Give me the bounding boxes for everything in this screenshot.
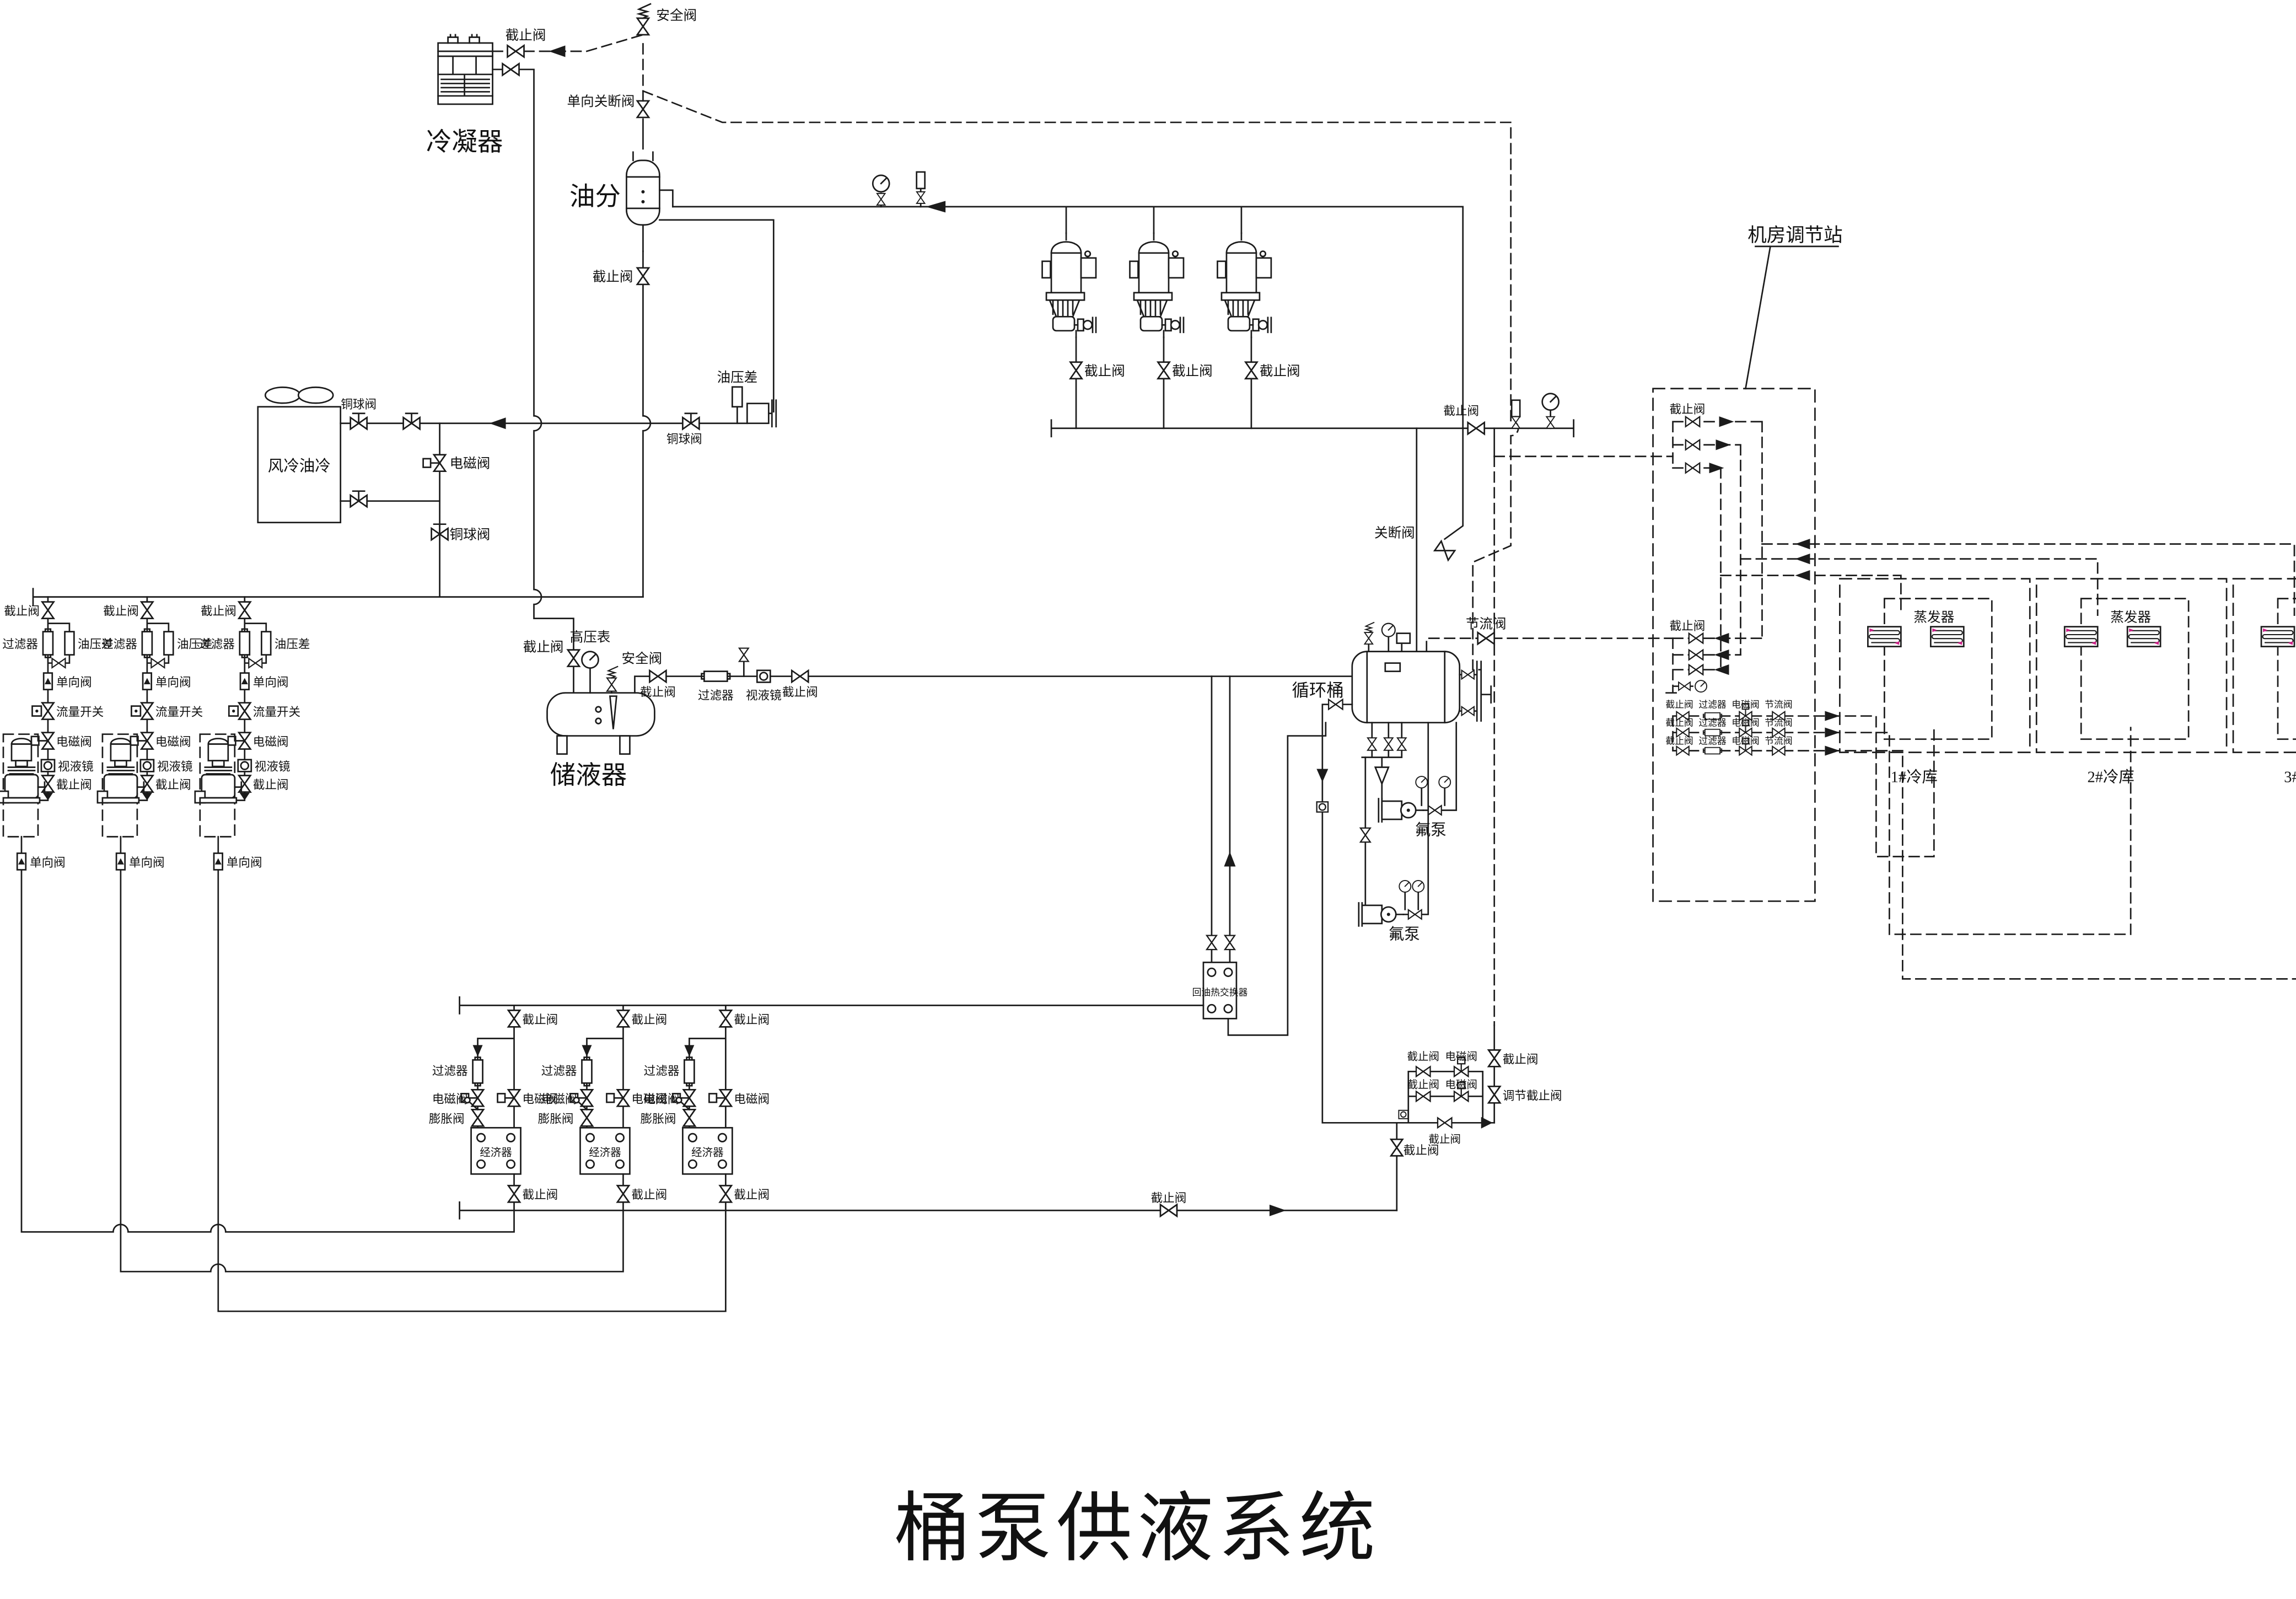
cold-room-boundary (2233, 579, 2296, 753)
flow-arrow-right (1481, 1117, 1493, 1129)
stop-valve-label: 截止阀 (1670, 620, 1706, 633)
check-valve-icon (116, 853, 125, 870)
copper-ball-valve-label: 铜球阀 (341, 398, 377, 411)
stop-valve-label: 截止阀 (201, 605, 236, 618)
piping-diagram-page: 冷凝器 截止阀 单向关断阀 安全阀 关断阀 油分 截止阀 (0, 0, 2296, 1599)
sight-glass-label: 视液镜 (157, 760, 193, 774)
evaporator-circuit-boundary (2278, 599, 2296, 739)
gauge-valve-icon (1546, 417, 1555, 428)
stop-valve-label: 截止阀 (1151, 1192, 1187, 1205)
cold-room-boundary (1840, 579, 2030, 753)
pump-gauge-icon (1412, 881, 1424, 892)
check-valve-icon (214, 853, 223, 870)
stop-valve-icon (508, 45, 524, 57)
stop-valve-icon (141, 602, 153, 619)
stop-valve-icon (1686, 463, 1700, 473)
station-boundary (1653, 389, 1815, 902)
gauge-icon (1695, 680, 1707, 692)
solenoid-valve-label: 电磁阀 (644, 1092, 680, 1106)
flow-switch-icon (229, 703, 250, 720)
stop-valve-label: 截止阀 (253, 779, 289, 792)
check-valve-label: 单向阀 (30, 856, 66, 869)
check-valve-label: 单向阀 (155, 676, 191, 689)
filter-label: 过滤器 (199, 638, 235, 651)
stop-valve-label: 截止阀 (1429, 1133, 1461, 1145)
diagram-title: 桶泵供液系统 (894, 1487, 1380, 1571)
flow-arrow-down (684, 1045, 694, 1056)
stop-valve-label: 截止阀 (1670, 403, 1706, 416)
solenoid-valve-label: 电磁阀 (432, 1092, 468, 1106)
high-pressure-gauge-icon (582, 652, 598, 668)
economizer-branch-2: 截止阀 过滤器 电磁阀 膨胀阀 电磁阀 经济器 截止阀 (538, 1005, 667, 1210)
stop-valve-icon (1408, 910, 1422, 919)
flow-switch-icon (32, 703, 53, 720)
cold-room-label: 2#冷库 (2087, 769, 2134, 786)
sight-glass-label: 视液镜 (255, 760, 291, 774)
high-pressure-gauge-label: 高压表 (570, 630, 611, 645)
pressure-gauge-icon (1382, 624, 1395, 637)
stop-valve-label: 截止阀 (1407, 1078, 1439, 1091)
solenoid-valve-icon (423, 455, 445, 471)
station-label: 机房调节站 (1747, 225, 1842, 246)
oil-separator-label: 油分 (569, 183, 621, 211)
evaporator-coil-icon (1868, 627, 1901, 647)
check-valve-label: 单向阀 (129, 856, 165, 869)
stop-valve-label: 截止阀 (640, 686, 676, 699)
one-way-shutoff-valve-icon (637, 101, 649, 117)
cold-room-label: 3#冷库 (2284, 769, 2296, 786)
diagram-canvas: 冷凝器 截止阀 单向关断阀 安全阀 关断阀 油分 截止阀 (0, 0, 2296, 1599)
screw-compressor-icon (1217, 233, 1271, 337)
check-valve-icon (44, 673, 52, 690)
solenoid-valve-label: 电磁阀 (1445, 1050, 1477, 1063)
stop-valve-label: 截止阀 (523, 640, 564, 655)
flow-switch-label: 流量开关 (253, 706, 300, 719)
solenoid-valve-label: 电磁阀 (1732, 736, 1759, 747)
stop-valve-label: 截止阀 (506, 28, 546, 43)
economizer-label: 经济器 (480, 1146, 512, 1158)
bypass-valve-icon (52, 658, 65, 668)
flow-switch-label: 流量开关 (155, 706, 203, 719)
stop-valve-label: 截止阀 (1084, 363, 1125, 379)
pump-gauge-icon (1416, 776, 1427, 788)
condenser-body (438, 43, 493, 104)
stop-valve-icon (1689, 650, 1703, 660)
stop-valve-icon (792, 670, 808, 682)
suction-header-group: 截止阀 截止阀 调节截止阀 (1051, 394, 1673, 1123)
stop-valve-icon (720, 1010, 732, 1027)
flow-arrow-down (473, 1045, 483, 1056)
oil-pressure-diff-device (65, 632, 74, 655)
stop-valve-label: 截止阀 (56, 779, 92, 792)
filter-label: 过滤器 (1698, 700, 1727, 710)
throttle-valve-label: 节流阀 (1765, 700, 1792, 710)
stop-valve-icon (1416, 1091, 1430, 1101)
filter-icon (702, 672, 730, 682)
stop-valve-label: 截止阀 (1665, 718, 1693, 728)
one-way-shutoff-label: 单向关断阀 (567, 94, 635, 109)
solenoid-valve-label: 电磁阀 (450, 456, 491, 471)
circulation-barrel-group: 循环桶 节流阀 (1292, 428, 1673, 1123)
stop-valve-label: 截止阀 (1407, 1050, 1439, 1063)
flow-arrow-right (1270, 1205, 1286, 1216)
bypass-valve-icon (151, 658, 164, 668)
stop-valve-icon (42, 602, 53, 619)
stop-valve-icon (1686, 417, 1700, 427)
filter-label: 过滤器 (541, 1064, 577, 1077)
cold-room-1: 蒸发器 1#冷库 (1840, 579, 2030, 786)
sensor-valve-icon (917, 192, 925, 203)
receiver-group: 储液器 截止阀 高压表 安全阀 (523, 630, 662, 790)
filter-label: 过滤器 (698, 689, 734, 702)
stop-valve-label: 截止阀 (631, 1013, 667, 1026)
circulation-barrel-label: 循环桶 (1292, 681, 1343, 700)
solenoid-valve-label: 电磁阀 (1732, 700, 1759, 710)
check-valve-label: 单向阀 (56, 676, 92, 689)
throttle-valve-label: 节流阀 (1765, 718, 1792, 728)
screw-compressor-icon (1130, 233, 1184, 337)
economizer-branch-3: 截止阀 过滤器 电磁阀 膨胀阀 电磁阀 经济器 截止阀 (641, 1005, 770, 1210)
sensor-valve-icon (1512, 417, 1520, 428)
level-valve-icon (1368, 738, 1376, 750)
oil-return-hx-label: 回油热交换器 (1192, 987, 1248, 997)
solenoid-valve-icon (498, 1090, 520, 1106)
solenoid-valve-icon (228, 733, 250, 749)
stop-valve-icon (1225, 936, 1235, 949)
stop-valve-icon (1488, 1050, 1500, 1066)
compressor-unit-1: 截止阀 (1042, 207, 1125, 428)
receiver-vessel (547, 693, 655, 736)
flow-arrow-left (490, 417, 506, 429)
solenoid-valve-label: 电磁阀 (734, 1092, 770, 1106)
flow-arrow-down (43, 793, 53, 800)
oil-pump-motor-icon (747, 400, 776, 427)
fan-icon (265, 387, 333, 403)
relief-valve-icon (1364, 623, 1374, 644)
flow-switch-label: 流量开关 (56, 706, 104, 719)
stop-valve-label: 截止阀 (1404, 1144, 1439, 1157)
solenoid-valve-label: 电磁阀 (155, 736, 191, 749)
stop-valve-label: 截止阀 (1443, 405, 1479, 418)
safety-valve-icon (637, 4, 650, 35)
filter-icon (684, 1058, 694, 1086)
level-valve-icon (1397, 738, 1406, 750)
fluorine-pump-label: 氟泵 (1389, 925, 1420, 943)
stop-valve-label: 截止阀 (523, 1013, 558, 1026)
stop-valve-icon (1461, 707, 1474, 716)
pressure-gauge-icon (1542, 394, 1559, 410)
stop-valve-label: 截止阀 (4, 605, 40, 618)
solenoid-valve-label: 电磁阀 (1445, 1078, 1477, 1091)
copper-ball-valve-icon (351, 491, 367, 507)
filter-label: 过滤器 (101, 638, 137, 651)
oil-cooler-label: 风冷油冷 (268, 458, 331, 475)
flow-switch-icon (131, 703, 153, 720)
economizer-branch-1: 截止阀 过滤器 电磁阀 膨胀阀 电磁阀 经济器 截止阀 (429, 1005, 558, 1210)
oil-header (33, 589, 643, 605)
condenser-label: 冷凝器 (426, 128, 503, 157)
stop-valve-icon (1438, 1118, 1451, 1128)
stop-valve-label: 截止阀 (631, 1188, 667, 1201)
solenoid-valve-icon (606, 1090, 628, 1106)
oil-pressure-diff-device (261, 632, 271, 655)
stop-valve-icon (508, 1010, 520, 1027)
sight-glass-icon (41, 760, 55, 772)
throttle-valve-icon (1478, 632, 1494, 644)
solenoid-valve-icon (31, 733, 53, 749)
stop-valve-icon (1160, 1205, 1177, 1216)
stop-valve-label: 截止阀 (103, 605, 139, 618)
safety-valve-icon (607, 667, 617, 691)
economizer-header: 截止阀 (460, 997, 1397, 1219)
safety-valve-label: 安全阀 (656, 8, 697, 23)
economizer-label: 经济器 (691, 1146, 723, 1158)
expansion-valve-label: 膨胀阀 (641, 1112, 676, 1125)
fluorine-pump-icon (1359, 903, 1404, 926)
bypass-valve-icon (249, 658, 262, 668)
stop-valve-label: 截止阀 (782, 686, 818, 699)
stop-valve-icon (1207, 936, 1217, 949)
stop-valve-icon (568, 650, 579, 667)
stop-valve-label: 截止阀 (1503, 1053, 1539, 1066)
solenoid-valve-label: 电磁阀 (1732, 718, 1759, 728)
oil-branch-2: 截止阀 过滤器 油压差 单向阀 流量开关 电磁阀 视液镜 截止阀 单向阀 (98, 597, 623, 1272)
discharge-header-group (673, 172, 1462, 539)
solenoid-valve-label: 电磁阀 (253, 736, 289, 749)
safety-valve-label: 安全阀 (621, 651, 662, 667)
regulating-stop-valve-label: 调节截止阀 (1503, 1089, 1562, 1102)
oil-pressure-diff-label: 油压差 (275, 638, 310, 651)
filter-icon (240, 629, 250, 658)
filter-label: 过滤器 (432, 1064, 468, 1077)
pump-gauge-icon (1439, 776, 1450, 788)
level-valve-icon (1384, 738, 1393, 750)
instrument-icon (1399, 1110, 1408, 1119)
check-valve-icon (17, 853, 26, 870)
oil-branch-1: 截止阀 过滤器 油压差 单向阀 流量开关 电磁阀 视液镜 截止阀 单向阀 (0, 597, 514, 1232)
filter-icon (473, 1058, 483, 1086)
evaporator-coil-icon (2127, 627, 2160, 647)
air-cooled-oil-cooler-group: 风冷油冷 铜球阀 铜球阀 电磁阀 铜球阀 油压差 (258, 370, 776, 597)
stop-valve-icon (1416, 1066, 1430, 1076)
sight-glass-icon (141, 760, 154, 772)
stop-valve-label: 截止阀 (1172, 363, 1213, 379)
filter-icon (43, 629, 53, 658)
sight-glass-icon (238, 760, 251, 772)
condenser-group: 冷凝器 截止阀 (426, 28, 643, 693)
check-valve-label: 单向阀 (253, 676, 289, 689)
screw-compressor-icon (1042, 233, 1096, 337)
stop-valve-icon (42, 776, 53, 792)
stop-valve-icon (720, 1185, 732, 1202)
flow-arrow-up (1224, 851, 1235, 866)
stop-valve-label: 截止阀 (1260, 363, 1300, 379)
solenoid-valve-label: 电磁阀 (541, 1092, 577, 1106)
stop-valve-icon (617, 1185, 629, 1202)
flow-arrow-down (582, 1045, 592, 1056)
copper-ball-valve-icon (682, 414, 699, 429)
filter-label: 过滤器 (1698, 718, 1727, 728)
stop-valve-icon (1686, 440, 1700, 450)
shutoff-valve-label: 关断阀 (1374, 525, 1415, 541)
flow-arrow-down (1316, 769, 1328, 782)
evaporator-label: 蒸发器 (1913, 610, 1954, 625)
stop-valve-icon (1689, 634, 1703, 643)
copper-ball-valve-label: 铜球阀 (450, 527, 491, 543)
cold-room-2: 蒸发器 2#冷库 (2036, 579, 2227, 786)
stop-valve-icon (1361, 828, 1370, 842)
stop-valve-icon (1689, 665, 1703, 675)
throttle-valve-label: 节流阀 (1765, 736, 1792, 747)
filter-label: 过滤器 (1698, 736, 1727, 747)
level-controller (1397, 634, 1410, 643)
copper-ball-valve-icon (351, 414, 367, 429)
bypass-group: 截止阀 截止阀 电磁阀 截止阀 电磁阀 截止阀 (1391, 1050, 1494, 1210)
stop-valve-label: 截止阀 (734, 1188, 770, 1201)
expansion-valve-label: 膨胀阀 (429, 1112, 465, 1125)
flow-arrow-down (240, 793, 250, 800)
economizer-label: 经济器 (589, 1146, 621, 1158)
pressure-gauge-icon (873, 175, 889, 192)
stop-valve-icon (1158, 362, 1169, 379)
station-supply-row-3: 截止阀 过滤器 电磁阀 节流阀 (1665, 736, 1840, 756)
filter-label: 过滤器 (2, 638, 38, 651)
safety-riser-group: 单向关断阀 安全阀 关断阀 (567, 4, 1519, 669)
copper-ball-valve-icon (404, 414, 420, 429)
solenoid-valve-label: 电磁阀 (56, 736, 92, 749)
cold-room-label: 1#冷库 (1891, 769, 1938, 786)
stop-valve-icon (1468, 422, 1485, 434)
liquid-line-group: 截止阀 过滤器 视液镜 截止阀 (635, 648, 1352, 963)
throttle-valve-label: 节流阀 (1466, 616, 1507, 632)
sight-glass-icon (1317, 802, 1328, 812)
stop-valve-icon (508, 1185, 520, 1202)
stop-valve-icon (1071, 362, 1082, 379)
sight-glass-label: 视液镜 (746, 689, 782, 702)
evaporator-coil-icon (2064, 627, 2098, 647)
stop-valve-icon (1461, 670, 1474, 679)
stop-valve-icon (1245, 362, 1257, 379)
evaporator-label: 蒸发器 (2110, 610, 2151, 625)
stop-valve-label: 截止阀 (155, 779, 191, 792)
flow-arrow-left (549, 45, 566, 57)
oil-pressure-diff-device (164, 632, 173, 655)
pressure-sensor (1512, 400, 1520, 417)
stop-valve-icon (1329, 700, 1342, 710)
oil-pressure-diff-label: 油压差 (717, 370, 757, 385)
sight-glass-label: 视液镜 (58, 760, 94, 774)
check-valve-label: 单向阀 (227, 856, 262, 869)
expansion-valve-label: 膨胀阀 (538, 1112, 574, 1125)
circulation-barrel-vessel (1352, 652, 1460, 723)
purge-valve-icon (739, 648, 749, 662)
suction-strainer (1375, 768, 1389, 784)
stop-valve-label: 截止阀 (1665, 736, 1693, 747)
stop-valve-icon (637, 268, 649, 285)
solenoid-valve-icon (131, 733, 153, 749)
stop-valve-icon (503, 63, 519, 75)
check-valve-icon (240, 673, 249, 690)
station-supply-row-2: 截止阀 过滤器 电磁阀 节流阀 (1665, 718, 1840, 738)
stop-valve-icon (617, 1010, 629, 1027)
stop-valve-label: 截止阀 (523, 1188, 558, 1201)
stop-valve-icon (239, 602, 250, 619)
stop-valve-label: 截止阀 (593, 269, 633, 285)
evaporator-coil-icon (2261, 627, 2294, 647)
check-valve-icon (143, 673, 152, 690)
filter-icon (142, 629, 152, 658)
stop-valve-icon (1428, 806, 1442, 815)
fluorine-pump-label: 氟泵 (1415, 821, 1447, 839)
solenoid-valve-icon (709, 1090, 731, 1106)
filter-icon (582, 1058, 592, 1086)
flow-arrow-left (926, 201, 945, 212)
cold-room-3: 蒸发器 3#冷库 (2233, 579, 2296, 786)
gauge-valve-icon (877, 194, 885, 205)
pressure-sensor (917, 172, 925, 189)
sight-glass-icon (757, 670, 770, 683)
shutoff-valve-icon (1434, 541, 1455, 560)
filter-label: 过滤器 (644, 1064, 680, 1077)
pump-gauge-icon (1399, 881, 1411, 892)
stop-valve-icon (1391, 1139, 1402, 1156)
gauge-valve-icon (1679, 682, 1690, 690)
flow-arrow-down (142, 793, 152, 800)
station-group: 机房调节站 截止阀 截止阀 截止阀 过滤器 电磁阀 (1653, 225, 2296, 979)
fluorine-pump-icon (1379, 799, 1423, 822)
stop-valve-label: 截止阀 (1665, 700, 1693, 710)
receiver-label: 储液器 (550, 762, 627, 790)
compressor-unit-3: 截止阀 (1217, 207, 1300, 428)
compressor-unit-2: 截止阀 (1130, 207, 1213, 428)
stop-valve-label: 截止阀 (734, 1013, 770, 1026)
evaporator-coil-icon (1931, 627, 1964, 647)
oil-pressure-diff-device (732, 387, 742, 407)
copper-ball-valve-label: 铜球阀 (666, 433, 702, 446)
regulating-stop-valve-icon (1488, 1086, 1500, 1103)
stop-valve-icon (649, 670, 666, 682)
cold-room-boundary (2036, 579, 2227, 753)
